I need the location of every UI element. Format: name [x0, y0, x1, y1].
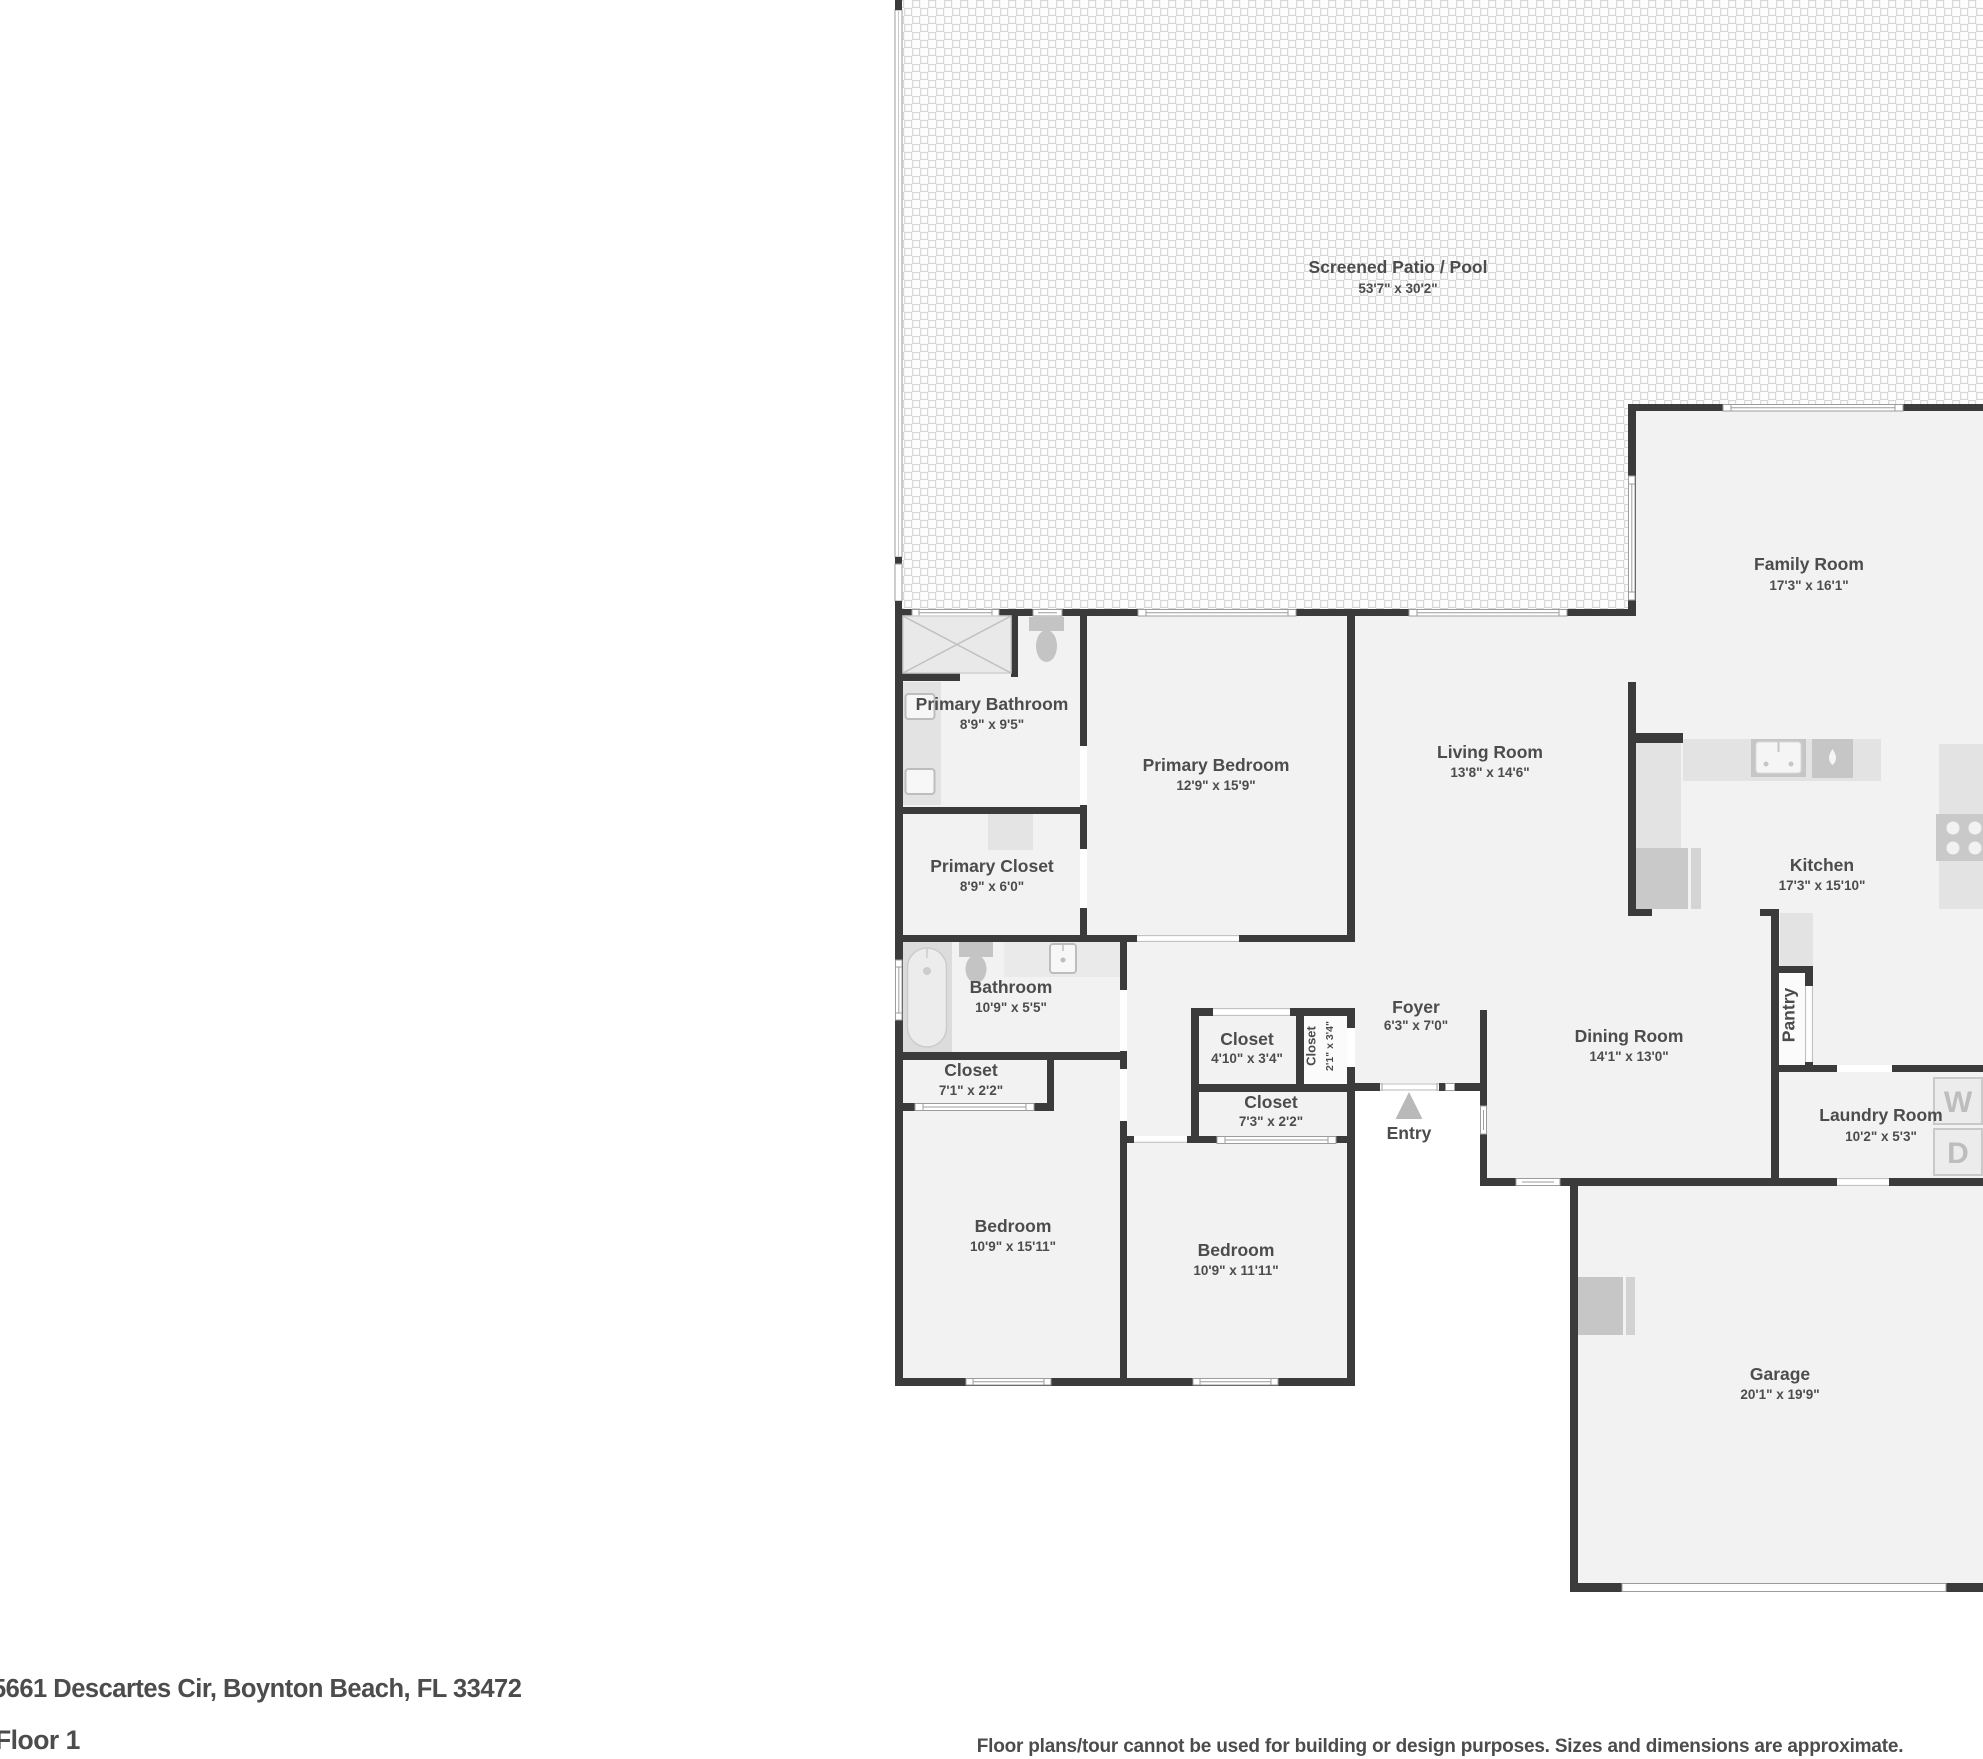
svg-text:10'2" x 5'3": 10'2" x 5'3"	[1845, 1129, 1917, 1144]
svg-text:Floor 1: Floor 1	[0, 1725, 80, 1755]
svg-text:7'1" x 2'2": 7'1" x 2'2"	[939, 1083, 1003, 1098]
svg-text:6'3" x 7'0": 6'3" x 7'0"	[1384, 1018, 1448, 1033]
svg-text:12'9" x 15'9": 12'9" x 15'9"	[1176, 778, 1255, 793]
svg-text:Primary Bathroom: Primary Bathroom	[916, 694, 1069, 714]
svg-text:17'3" x 15'10": 17'3" x 15'10"	[1779, 878, 1866, 893]
svg-text:W: W	[1944, 1086, 1973, 1119]
svg-text:13'8" x 14'6": 13'8" x 14'6"	[1450, 765, 1529, 780]
svg-text:Closet: Closet	[944, 1060, 998, 1080]
svg-text:Bedroom: Bedroom	[975, 1216, 1052, 1236]
svg-text:Closet: Closet	[1244, 1092, 1298, 1112]
svg-text:Entry: Entry	[1387, 1123, 1432, 1143]
svg-text:Bathroom: Bathroom	[970, 977, 1053, 997]
svg-text:17'3" x 16'1": 17'3" x 16'1"	[1769, 578, 1848, 593]
svg-text:Closet: Closet	[1220, 1029, 1274, 1049]
svg-text:8'9" x 9'5": 8'9" x 9'5"	[960, 717, 1024, 732]
svg-text:Laundry Room: Laundry Room	[1819, 1105, 1942, 1125]
svg-text:Closet: Closet	[1303, 1025, 1318, 1065]
svg-text:Primary Closet: Primary Closet	[930, 856, 1054, 876]
svg-text:Pantry: Pantry	[1779, 988, 1799, 1043]
svg-text:Primary Bedroom: Primary Bedroom	[1143, 755, 1290, 775]
svg-text:Family Room: Family Room	[1754, 554, 1864, 574]
svg-text:10'9" x 11'11": 10'9" x 11'11"	[1193, 1263, 1278, 1278]
svg-text:4'10" x 3'4": 4'10" x 3'4"	[1211, 1051, 1283, 1066]
svg-text:53'7" x 30'2": 53'7" x 30'2"	[1358, 281, 1437, 296]
svg-text:Foyer: Foyer	[1392, 997, 1440, 1017]
svg-text:20'1" x 19'9": 20'1" x 19'9"	[1740, 1387, 1819, 1402]
svg-text:Screened Patio / Pool: Screened Patio / Pool	[1309, 257, 1488, 277]
svg-text:7'3" x 2'2": 7'3" x 2'2"	[1239, 1114, 1303, 1129]
svg-text:Kitchen: Kitchen	[1790, 855, 1854, 875]
svg-text:14'1" x 13'0": 14'1" x 13'0"	[1589, 1049, 1668, 1064]
svg-text:Garage: Garage	[1750, 1364, 1811, 1384]
svg-text:8'9" x 6'0": 8'9" x 6'0"	[960, 879, 1024, 894]
svg-text:10'9" x 15'11": 10'9" x 15'11"	[970, 1239, 1056, 1254]
svg-text:10'9" x 5'5": 10'9" x 5'5"	[975, 1000, 1047, 1015]
svg-text:D: D	[1947, 1137, 1969, 1170]
svg-text:Living Room: Living Room	[1437, 742, 1543, 762]
svg-text:Floor plans/tour cannot be use: Floor plans/tour cannot be used for buil…	[977, 1736, 1904, 1757]
svg-text:Dining Room: Dining Room	[1575, 1026, 1684, 1046]
svg-text:5661 Descartes Cir, Boynton Be: 5661 Descartes Cir, Boynton Beach, FL 33…	[0, 1675, 522, 1703]
svg-text:2'1" x 3'4": 2'1" x 3'4"	[1324, 1021, 1336, 1071]
svg-text:Bedroom: Bedroom	[1198, 1240, 1275, 1260]
